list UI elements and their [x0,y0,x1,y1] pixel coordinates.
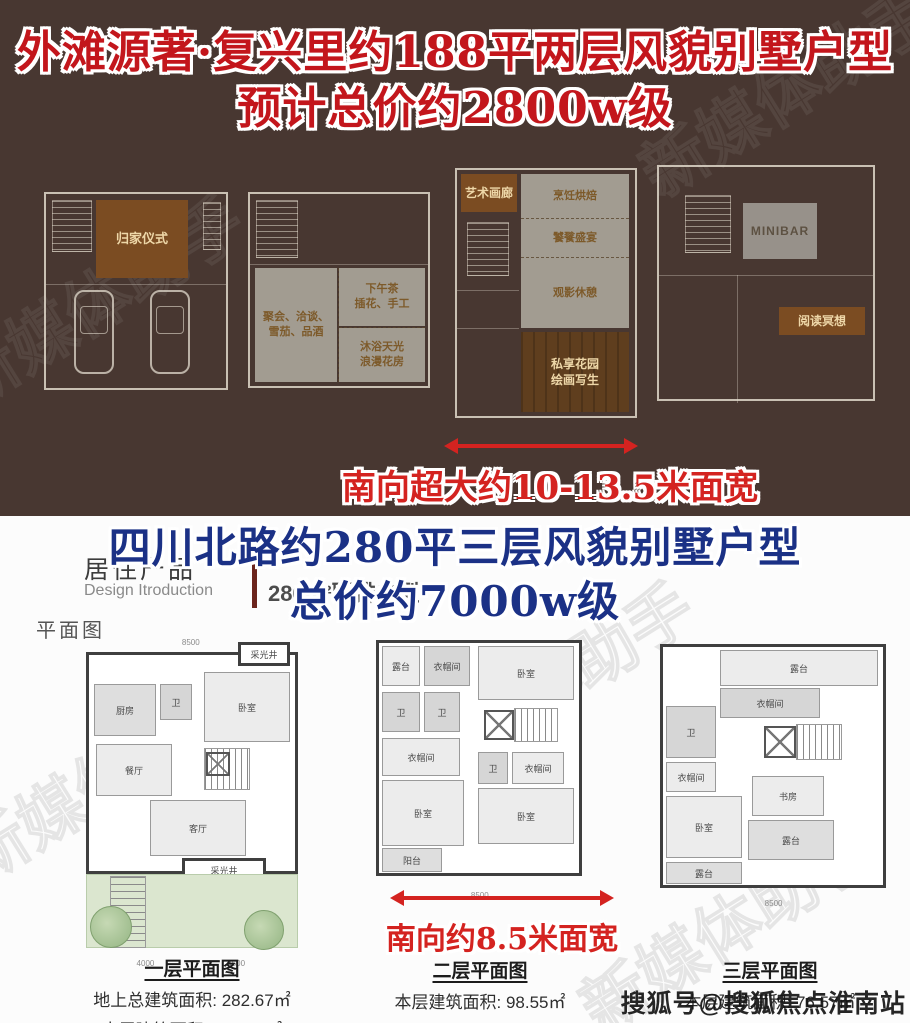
room-bedroom: 卧室 [478,788,574,844]
room-label: 卫 [171,696,180,709]
room-private-garden: 私享花园 绘画写生 [521,332,629,412]
room-label: 卧室 [238,701,256,714]
wall-line [46,284,226,285]
room-label: 下午茶 插花、手工 [355,282,410,312]
room-kitchen: 厨房 [94,684,156,736]
room-afternoon-tea: 下午茶 插花、手工 [339,268,425,326]
floorplan-level1: 8500 采光井 厨房 卫 卧室 餐厅 客厅 采光 [66,640,318,958]
room-living: 客厅 [150,800,246,856]
bottom-title-line2: 总价约7000w级 [0,578,910,626]
stairs [256,200,298,258]
wall-line [457,290,519,291]
room-sun-bath: 沐浴天光 浪漫花房 [339,328,425,382]
caption-area-line: 本层建筑面积: 107.55㎡ [56,1016,328,1023]
width-arrow-icon [450,444,632,448]
room-label: 卫 [396,706,405,719]
room-terrace: 露台 [720,650,878,686]
caption-title: 二层平面图 [356,956,604,983]
room-label: 衣帽间 [756,697,783,710]
room-label: MINIBAR [751,223,809,239]
room-bath: 卫 [666,706,716,758]
room-label: 沐浴天光 浪漫花房 [360,340,404,370]
elevator [764,726,796,758]
room-bedroom: 卧室 [382,780,464,846]
dimension-label: 8500 [765,899,783,908]
floorplan-dark-level1: 归家仪式 [44,192,228,390]
stairs [796,724,842,760]
south-width-note: 南向约8.5米面宽 [322,914,682,958]
caption-title: 一层平面图 [56,954,328,981]
room-closet: 衣帽间 [666,762,716,792]
top-section: 新媒体助手 新媒体助手 外滩源著·复兴里约188平两层风貌别墅户型 预计总价约2… [0,0,910,516]
room-label: 卧室 [517,810,535,823]
wall-line [521,218,629,219]
tree-icon [90,906,132,948]
wall-line [250,264,428,265]
car-icon [74,290,114,374]
room-label: 衣帽间 [524,762,551,775]
tree-icon [244,910,284,950]
stairs [203,202,221,250]
wall-line [737,275,738,403]
stairs [52,200,92,252]
room-closet: 衣帽间 [512,752,564,784]
wall-line [521,257,629,258]
room-minibar: MINIBAR [743,203,817,259]
bottom-title-line1: 四川北路约280平三层风貌别墅户型 [0,524,910,572]
caption-title: 三层平面图 [636,956,904,983]
room-bath: 卫 [478,752,508,784]
floorplan-level3: 露台 衣帽间 卫 衣帽间 卧室 书房 露台 露台 [646,630,904,902]
room-balcony: 阳台 [382,848,442,872]
room-label: 阳台 [403,854,421,867]
room-party-lounge: 聚会、洽谈、 雪茄、品酒 [255,268,337,382]
room-bedroom: 卧室 [666,796,742,858]
wall-line [457,328,519,329]
room-label: 私享花园 绘画写生 [551,356,599,388]
room-label: 书房 [779,790,797,803]
width-arrow-icon [396,896,608,900]
room-terrace: 露台 [748,820,834,860]
dimension-label: 8500 [182,638,200,647]
room-cooking: 烹饪烘焙 [521,174,629,218]
room-terrace: 露台 [382,646,420,686]
room-label: 烹饪烘焙 [553,189,597,204]
room-label: 客厅 [189,822,207,835]
wall-line [338,268,339,382]
room-art-gallery: 艺术画廊 [461,174,517,212]
room-dining: 餐厅 [96,744,172,796]
room-bath: 卫 [382,692,420,732]
room-label: 露台 [392,660,410,673]
wall-line [339,327,425,328]
elevator [206,752,230,776]
room-closet: 衣帽间 [720,688,820,718]
room-lightwell-top: 采光井 [238,642,290,666]
room-label: 卫 [488,762,497,775]
floorplan-level2: 露台 衣帽间 卧室 卫 卫 衣帽间 卫 衣帽间 [366,630,594,892]
caption-level2: 二层平面图 本层建筑面积: 98.55㎡ [356,956,604,1013]
floorplan-dark-level3: 艺术画廊 烹饪烘焙 饕餮盛宴 观影休憩 私享花园 绘画写生 [455,168,637,418]
south-width-note: 南向超大约10-13.5米面宽 [320,460,780,509]
stairs [467,222,509,276]
room-label: 卧室 [695,821,713,834]
top-title-line2: 预计总价约2800w级 [0,84,910,135]
room-label: 露台 [782,834,800,847]
room-label: 卧室 [517,667,535,680]
floorplan-dark-level2: 聚会、洽谈、 雪茄、品酒 下午茶 插花、手工 沐浴天光 浪漫花房 [248,192,430,388]
room-bedroom: 卧室 [204,672,290,742]
room-bedroom: 卧室 [478,646,574,700]
room-label: 采光井 [250,648,277,661]
room-cinema-rest: 观影休憩 [521,258,629,328]
floorplan-dark-level4: MINIBAR 阅读冥想 [657,165,875,401]
top-title-line1: 外滩源著·复兴里约188平两层风貌别墅户型 [0,28,910,79]
room-label: 聚会、洽谈、 雪茄、品酒 [263,310,329,340]
room-label: 观影休憩 [553,286,597,301]
room-label: 饕餮盛宴 [553,231,597,246]
room-bath: 卫 [160,684,192,720]
bottom-section: 新媒体助手 新媒体助手 新媒体助手 居住产品 Design Itroductio… [0,516,910,1023]
room-reading-meditation: 阅读冥想 [779,307,865,335]
caption-area-line: 地上总建筑面积: 282.67㎡ [56,986,328,1011]
room-label: 衣帽间 [677,771,704,784]
sohu-watermark: 搜狐号@搜狐焦点淮南站 [621,984,906,1020]
room-label: 餐厅 [125,764,143,777]
room-label: 露台 [695,867,713,880]
room-entry-ritual: 归家仪式 [96,200,188,278]
room-label: 卧室 [414,807,432,820]
room-label: 艺术画廊 [465,185,513,201]
room-label: 卫 [686,726,695,739]
floorplan-poster: 新媒体助手 新媒体助手 外滩源著·复兴里约188平两层风貌别墅户型 预计总价约2… [0,0,910,1023]
room-feast: 饕餮盛宴 [521,220,629,256]
room-study: 书房 [752,776,824,816]
room-label: 阅读冥想 [798,313,846,329]
room-terrace: 露台 [666,862,742,884]
room-label: 衣帽间 [433,660,460,673]
wall-line [659,275,873,276]
room-label: 厨房 [116,704,134,717]
stairs [514,708,558,742]
caption-level1: 一层平面图 地上总建筑面积: 282.67㎡ 本层建筑面积: 107.55㎡ [56,954,328,1023]
elevator [484,710,514,740]
car-icon [150,290,190,374]
room-closet: 衣帽间 [424,646,470,686]
room-label: 露台 [790,662,808,675]
caption-area-line: 本层建筑面积: 98.55㎡ [356,988,604,1013]
room-label: 衣帽间 [407,751,434,764]
room-label: 卫 [437,706,446,719]
stairs [685,195,731,253]
room-closet: 衣帽间 [382,738,460,776]
room-bath: 卫 [424,692,460,732]
room-label: 归家仪式 [116,230,168,248]
